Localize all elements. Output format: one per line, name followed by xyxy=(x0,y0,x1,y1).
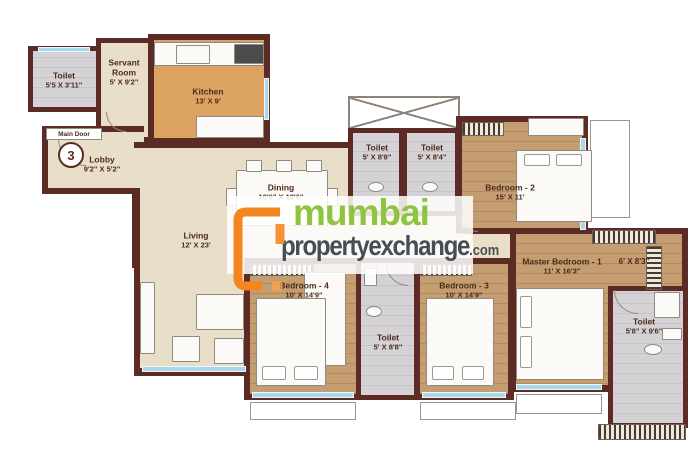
pillow xyxy=(520,336,532,368)
wardrobe-bedroom2 xyxy=(462,122,504,136)
brand-name-line2: propertyexchange.com xyxy=(281,230,499,262)
window-toilet-servant xyxy=(38,47,90,52)
label-kitchen: Kitchen 13' X 9' xyxy=(192,86,223,105)
balcony-bedroom2 xyxy=(590,120,630,218)
window-kitchen xyxy=(264,78,269,120)
label-bedroom2: Bedroom - 2 15' X 11' xyxy=(485,182,535,201)
window-master xyxy=(516,384,602,390)
main-door-label: Main Door xyxy=(46,128,102,140)
wardrobe-master-top xyxy=(592,230,656,244)
label-toilet-a: Toilet 5' X 8'8" xyxy=(363,142,392,161)
wardrobe-master-right xyxy=(646,246,662,290)
balcony-master xyxy=(516,394,602,414)
pillow xyxy=(524,154,550,166)
washbasin-icon xyxy=(422,182,438,192)
brand-name-line1: mumbai xyxy=(293,192,429,234)
kitchen-platform xyxy=(196,116,264,138)
wc-icon xyxy=(366,306,382,317)
window-bedroom3 xyxy=(422,392,506,398)
pillow xyxy=(432,366,454,380)
balcony-bedroom4 xyxy=(250,402,356,420)
tv-unit xyxy=(140,282,155,354)
armchair xyxy=(214,338,244,364)
pillow xyxy=(556,154,582,166)
stove-icon xyxy=(176,45,210,64)
pillow xyxy=(262,366,286,380)
window-bedroom4 xyxy=(252,392,354,398)
armchair xyxy=(172,336,200,362)
washbasin-icon xyxy=(662,328,682,340)
label-toilet-master: Toilet 5'8" X 9'6" xyxy=(626,316,663,335)
window-living xyxy=(142,366,246,372)
label-lobby: Lobby 9'2" X 5'2" xyxy=(84,154,121,173)
pillow xyxy=(462,366,484,380)
shower-icon xyxy=(654,292,680,318)
label-bedroom3: Bedroom - 3 10' X 14'9" xyxy=(439,280,489,299)
dining-chair xyxy=(306,160,322,172)
dining-chair xyxy=(246,160,262,172)
duct-shaft xyxy=(348,96,460,130)
label-servant: Servant Room 5' X 9'2" xyxy=(97,57,151,86)
sink-icon xyxy=(234,44,264,64)
dining-chair xyxy=(276,160,292,172)
label-master: Master Bedroom - 1 11' X 16'3" xyxy=(522,256,601,275)
label-toilet-servant: Toilet 5'5 X 3'11" xyxy=(46,70,83,89)
label-living: Living 12' X 23' xyxy=(181,230,210,249)
wall-living-left xyxy=(132,188,140,268)
balcony-bedroom3 xyxy=(420,402,516,420)
brand-logo-icon xyxy=(232,204,288,296)
washbasin-icon xyxy=(368,182,384,192)
floor-plan: Main Door 3 Toilet 5'5 X 3'11" Servant R… xyxy=(0,0,695,467)
label-dressing: 6' X 8'3" xyxy=(619,257,650,267)
dresser-bedroom2 xyxy=(528,118,584,136)
label-toilet-b: Toilet 5' X 8'4" xyxy=(418,142,447,161)
pillow xyxy=(520,296,532,328)
deck-bottom-right xyxy=(598,424,686,440)
pillow xyxy=(294,366,318,380)
coffee-table xyxy=(196,294,244,330)
wc-icon xyxy=(644,344,662,355)
main-door-number: 3 xyxy=(58,142,84,168)
watermark: mumbai propertyexchange.com xyxy=(227,196,473,274)
label-toilet-c: Toilet 5' X 8'8" xyxy=(374,332,403,351)
